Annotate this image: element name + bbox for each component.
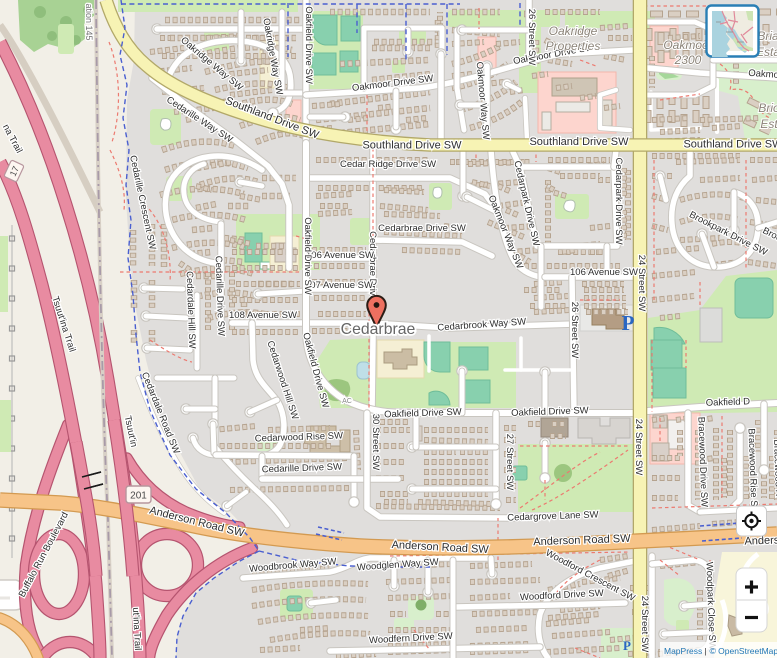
svg-text:Oakridge: Oakridge (549, 24, 598, 38)
svg-text:Oakfield Drive SW: Oakfield Drive SW (303, 6, 314, 84)
svg-text:106 Avenue SW: 106 Avenue SW (306, 250, 374, 261)
svg-text:|: | (705, 646, 707, 656)
svg-text:Bria: Bria (757, 29, 777, 43)
svg-text:Properties: Properties (546, 39, 601, 53)
svg-text:Cedarbrae: Cedarbrae (341, 321, 416, 338)
svg-text:Southland Drive SW: Southland Drive SW (529, 136, 629, 148)
svg-text:107 Avenue SW: 107 Avenue SW (305, 280, 373, 291)
svg-text:Oakfield D: Oakfield D (706, 396, 751, 409)
svg-text:© OpenStreetMap: © OpenStreetMap (710, 646, 777, 656)
svg-text:Est: Est (760, 117, 777, 131)
svg-text:Cedar Ridge Drive SW: Cedar Ridge Drive SW (340, 159, 436, 170)
svg-text:AC: AC (342, 398, 352, 405)
svg-text:26 Street SW: 26 Street SW (569, 302, 580, 359)
svg-text:P: P (623, 638, 631, 653)
svg-text:24 Street SW: 24 Street SW (633, 419, 644, 476)
svg-text:Southland Drive SW: Southland Drive SW (362, 140, 462, 152)
svg-text:26 Street SW: 26 Street SW (526, 9, 537, 66)
svg-text:24 Street SW: 24 Street SW (639, 596, 650, 653)
svg-text:Brio: Brio (758, 101, 777, 115)
svg-text:ut'ina Trail: ut'ina Trail (130, 607, 143, 651)
svg-text:30 Street SW: 30 Street SW (370, 414, 381, 471)
svg-text:108 Avenue SW: 108 Avenue SW (229, 310, 297, 321)
svg-text:27 Street SW: 27 Street SW (504, 434, 515, 491)
svg-text:Southland Drive SW: Southland Drive SW (683, 139, 777, 151)
svg-text:ation 145: ation 145 (84, 3, 94, 40)
svg-text:Cedarpark Drive SW: Cedarpark Drive SW (613, 157, 624, 244)
svg-text:106 Avenue SW: 106 Avenue SW (570, 267, 638, 278)
svg-text:201: 201 (130, 491, 147, 502)
svg-text:MapPress: MapPress (664, 646, 702, 656)
svg-text:2300: 2300 (674, 53, 702, 67)
svg-text:P: P (622, 311, 635, 335)
svg-text:Cedarbrae Drive SW: Cedarbrae Drive SW (378, 223, 466, 234)
svg-text:Oakfield Drive SW: Oakfield Drive SW (302, 217, 313, 295)
svg-text:24 Street SW: 24 Street SW (636, 255, 647, 312)
